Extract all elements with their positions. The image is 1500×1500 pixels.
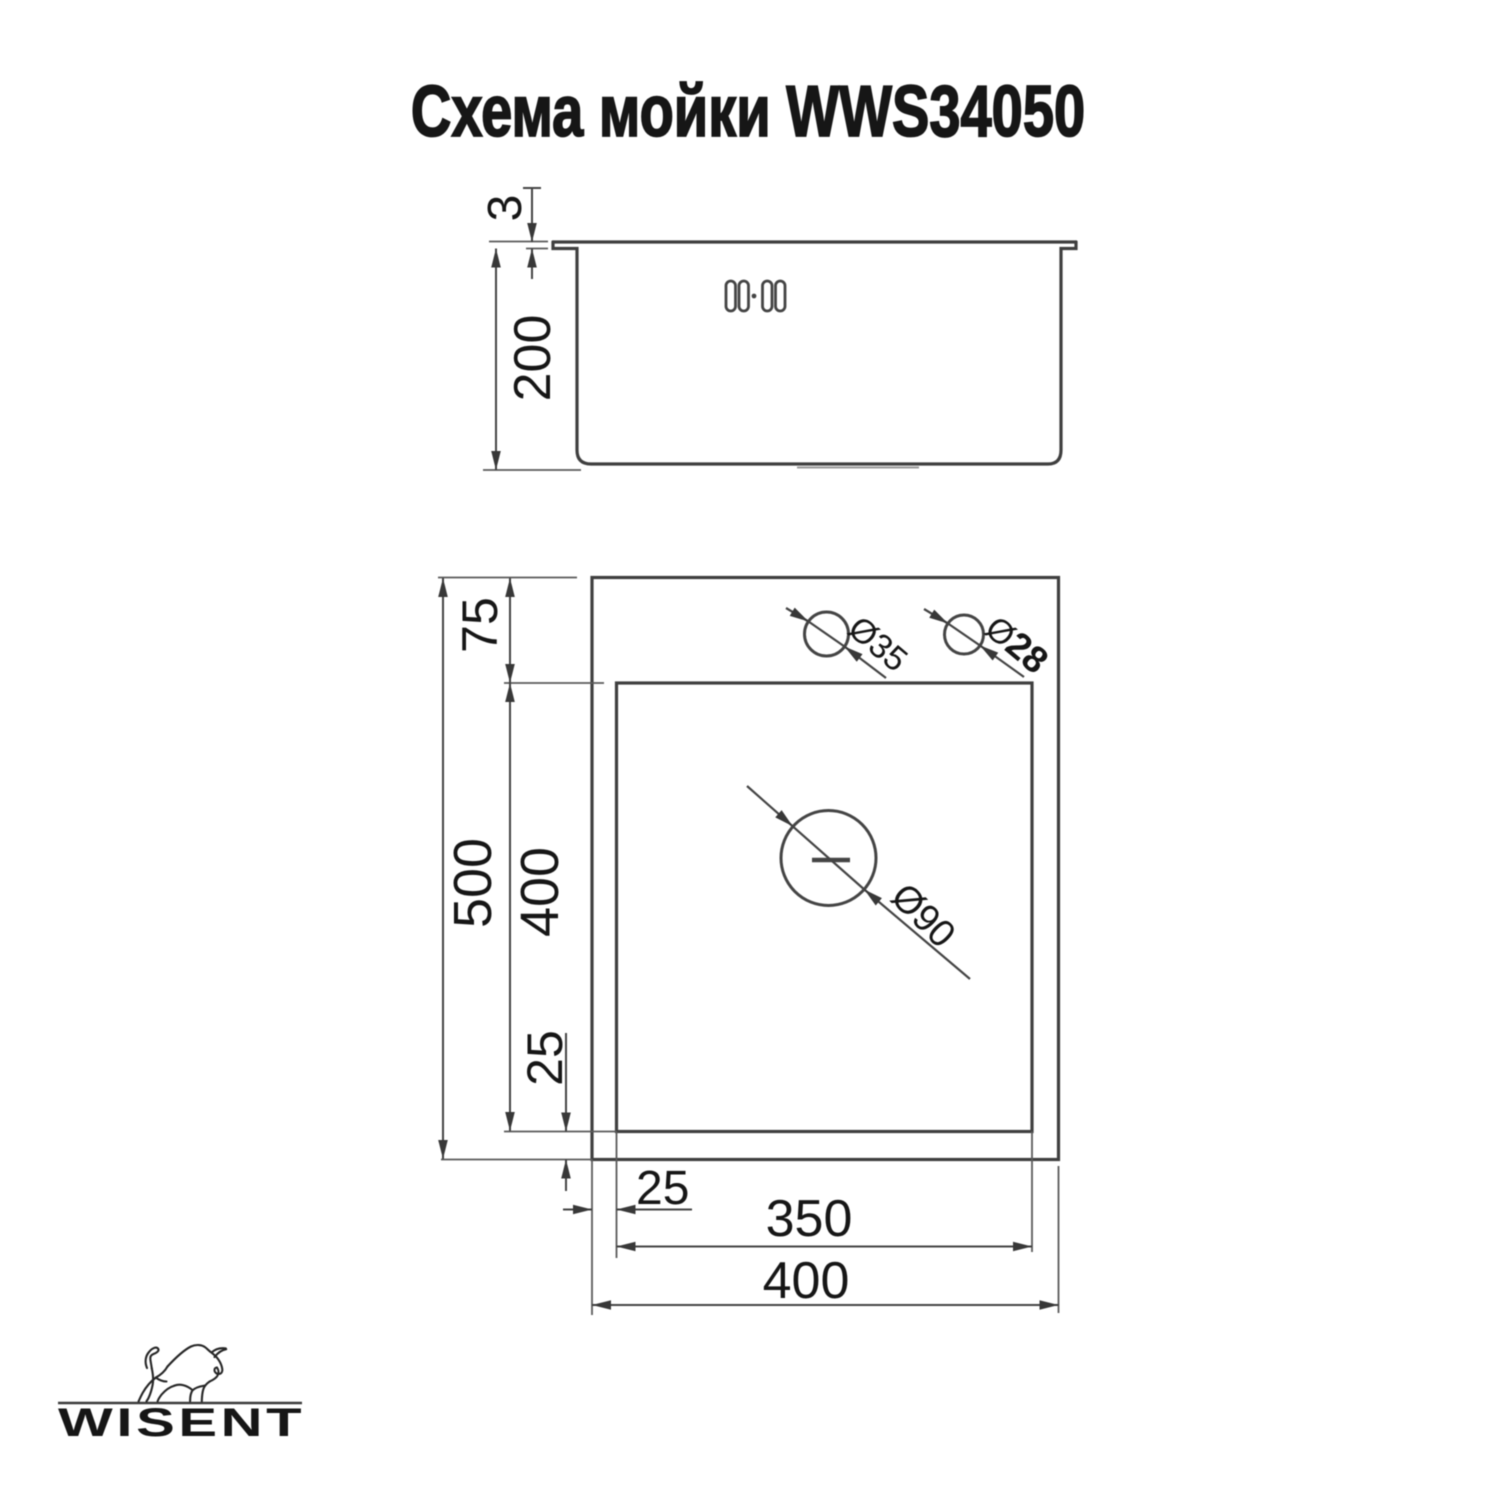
svg-text:Ø28: Ø28 (978, 607, 1056, 682)
svg-text:Ø90: Ø90 (883, 876, 963, 956)
svg-text:500: 500 (443, 838, 503, 928)
svg-text:400: 400 (510, 847, 570, 937)
svg-text:200: 200 (504, 315, 562, 402)
svg-text:400: 400 (763, 1252, 850, 1310)
svg-text:Схема мойки WWS34050: Схема мойки WWS34050 (411, 71, 1085, 151)
svg-text:Ø35: Ø35 (841, 609, 915, 679)
svg-text:25: 25 (636, 1162, 689, 1215)
svg-text:WISENT: WISENT (58, 1400, 305, 1445)
svg-text:3: 3 (479, 195, 532, 222)
svg-text:350: 350 (766, 1190, 853, 1248)
svg-text:25: 25 (517, 1030, 573, 1086)
svg-text:75: 75 (452, 597, 508, 653)
